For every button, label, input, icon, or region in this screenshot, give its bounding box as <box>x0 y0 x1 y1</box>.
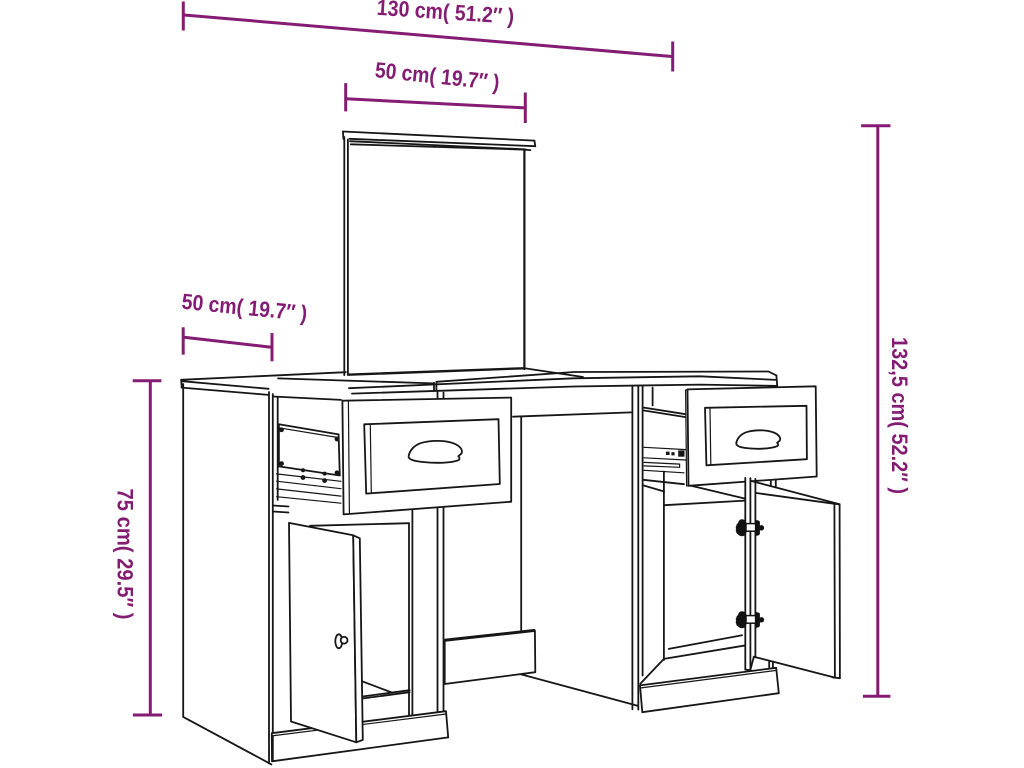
svg-text:132,5 cm( 52.2″ ): 132,5 cm( 52.2″ ) <box>887 337 912 494</box>
svg-text:75 cm( 29.5″ ): 75 cm( 29.5″ ) <box>113 489 138 620</box>
